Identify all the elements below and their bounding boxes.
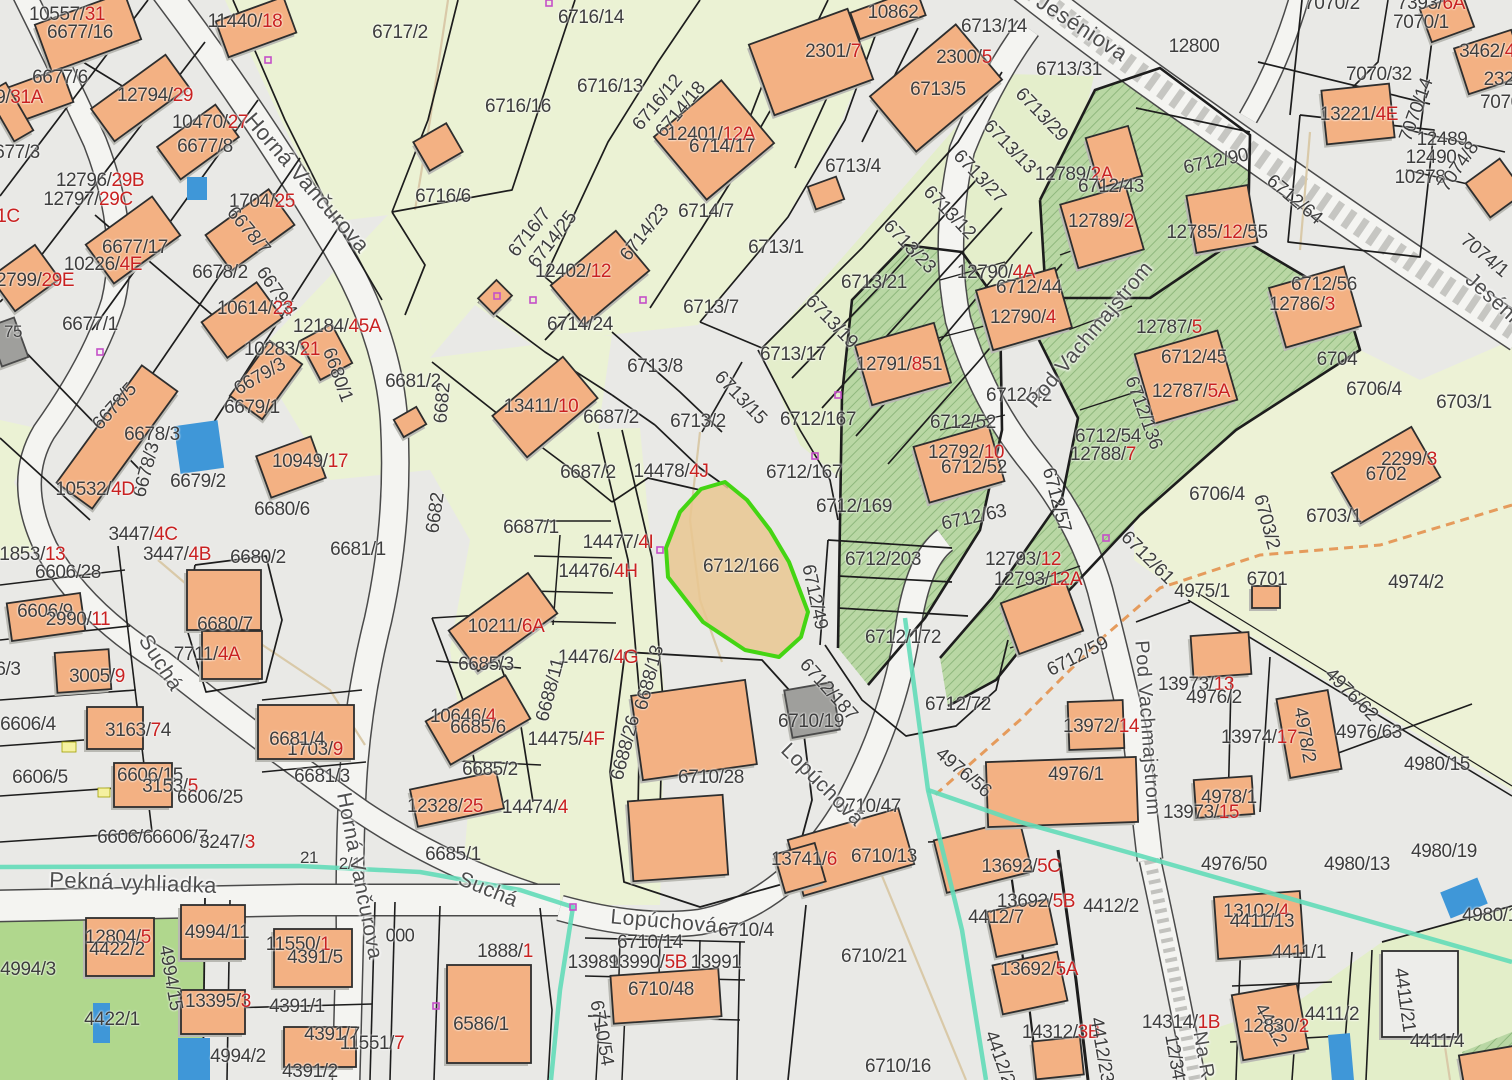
- parcel-label: 13411/10: [504, 396, 579, 418]
- parcel-label: 6712/49: [796, 562, 831, 631]
- parcel-label: 10862: [868, 2, 919, 24]
- parcel-label: 12789/2: [1068, 211, 1134, 233]
- parcel-label: 12790/4: [990, 307, 1056, 329]
- parcel-label: 6713/1: [748, 237, 804, 259]
- parcel-label: 6706/4: [1189, 484, 1245, 506]
- parcel-label: 6687/2: [583, 407, 639, 429]
- parcel-label: 4391/2: [282, 1061, 338, 1080]
- parcel-label: 6710/48: [628, 979, 694, 1001]
- parcel-label: 12402/12: [535, 261, 611, 283]
- parcel-label: 6606/25: [177, 787, 243, 809]
- parcel-label: 21: [300, 848, 318, 868]
- parcel-label: 3462/4: [1459, 41, 1512, 63]
- parcel-label: 12787/5A: [1152, 381, 1230, 403]
- parcel-label: 4976/56: [931, 743, 996, 802]
- parcel-label: 13741/6: [771, 849, 837, 871]
- parcel-label: 12799/29E: [0, 270, 74, 292]
- parcel-label: 14474/4: [502, 797, 568, 819]
- parcel-label: 6586/1: [453, 1014, 509, 1036]
- parcel-label: 6606/5: [12, 767, 68, 789]
- parcel-label: 4412/7: [968, 907, 1024, 929]
- parcel-label: 13973/15: [1163, 802, 1239, 824]
- parcel-label: 6710/21: [841, 946, 907, 968]
- parcel-label: 6712/166: [703, 556, 779, 578]
- parcel-label: 6702: [1366, 464, 1407, 486]
- parcel-label: 6716/13: [577, 76, 643, 98]
- parcel-label: 6606/4: [0, 714, 56, 736]
- parcel-label: 6713/5: [910, 79, 966, 101]
- parcel-label: 4422/2: [89, 939, 145, 961]
- parcel-label: 6712/45: [1161, 347, 1227, 369]
- parcel-label: 7393/6A: [1397, 0, 1465, 15]
- parcel-label: 6712/59: [1044, 632, 1113, 682]
- parcel-label: 14476/4G: [558, 647, 638, 669]
- parcel-label: 6710/16: [865, 1056, 931, 1078]
- parcel-label: 4411/2: [1305, 1004, 1359, 1026]
- parcel-label: 12794/29: [117, 85, 193, 107]
- parcel-label: 4978/2: [1288, 706, 1319, 765]
- parcel-label: 3163/74: [105, 720, 171, 742]
- parcel-label: 75: [4, 322, 22, 342]
- parcel-label: 12830/2: [1243, 1016, 1309, 1038]
- parcel-label: 6687/2: [560, 462, 616, 484]
- parcel-label: 6712/90: [1181, 144, 1250, 179]
- parcel-label: 4980/19: [1411, 841, 1477, 863]
- parcel-label: 10226/4E: [64, 254, 142, 276]
- parcel-label: 2324: [1484, 69, 1512, 91]
- parcel-label: 4994/2: [210, 1046, 266, 1068]
- street-label: Pekná vyhliadka: [49, 867, 218, 899]
- parcel-label: 7070/3: [1480, 92, 1512, 114]
- parcel-label: 2300/5: [936, 47, 992, 69]
- parcel-label: 6712/63: [939, 500, 1008, 535]
- parcel-label: 6710/4: [718, 920, 774, 942]
- map-viewport[interactable]: 10557/316677/1611440/186677/612794/2939/…: [0, 0, 1512, 1080]
- parcel-label: 4976/62: [1320, 664, 1382, 726]
- parcel-label: 13692/5C: [981, 856, 1060, 878]
- parcel-label: 12328/25: [407, 796, 483, 818]
- parcel-label: 4976/50: [1201, 854, 1267, 876]
- parcel-label: 000: [386, 926, 415, 947]
- parcel-label: 6712/167: [766, 462, 842, 484]
- parcel-label: 6712/61: [1116, 527, 1178, 589]
- parcel-label: 4994/11: [185, 922, 249, 944]
- parcel-label: 2990/11: [46, 609, 110, 631]
- parcel-label: 6681/1: [330, 539, 386, 561]
- parcel-label: 6713/2: [670, 411, 726, 433]
- parcel-label: 3447/4B: [143, 544, 211, 566]
- parcel-label: 6710/13: [851, 846, 917, 868]
- parcel-label: 6713/12: [918, 182, 980, 245]
- parcel-label: 3005/9: [69, 666, 125, 688]
- parcel-label: 6/3: [0, 659, 21, 681]
- parcel-label: 6679/1: [224, 397, 280, 419]
- parcel-label: 4980/1: [1462, 905, 1512, 927]
- parcel-label: 12786/3: [1269, 294, 1335, 316]
- parcel-label: 6713/14: [961, 16, 1027, 38]
- parcel-label: 6713/17: [760, 344, 826, 366]
- parcel-label: 4980/13: [1324, 854, 1390, 876]
- parcel-label: 6712/57: [1037, 465, 1075, 534]
- parcel-label: 6682: [422, 491, 449, 534]
- parcel-label: 12787/5: [1136, 317, 1202, 339]
- parcel-label: 6677/16: [47, 22, 113, 44]
- labels-layer: 10557/316677/1611440/186677/612794/2939/…: [0, 0, 1512, 1080]
- parcel-label: 6680/6: [254, 499, 310, 521]
- parcel-label: 3447/4C: [108, 524, 177, 546]
- parcel-label: 12184/45A: [293, 316, 381, 338]
- parcel-label: 13990/5B: [609, 952, 687, 974]
- parcel-label: 6687/1: [503, 517, 559, 539]
- parcel-label: 13972/14: [1063, 716, 1139, 738]
- parcel-label: 6713/23: [878, 216, 940, 279]
- parcel-label: 4412/23: [1084, 1016, 1117, 1080]
- parcel-label: 6688/11: [532, 656, 570, 724]
- parcel-label: 11551/7: [340, 1033, 404, 1055]
- parcel-label: 6682: [430, 382, 455, 424]
- parcel-label: 6710/28: [678, 767, 744, 789]
- parcel-label: 6712/64: [1262, 170, 1327, 229]
- parcel-label: 6680/7: [197, 614, 253, 636]
- parcel-label: 14476/4H: [558, 561, 637, 583]
- parcel-label: 11440/18: [208, 11, 283, 33]
- parcel-label: 12797/29C: [43, 189, 132, 211]
- parcel-label: 6712/52: [930, 412, 996, 434]
- parcel-label: 4994/15: [153, 944, 186, 1013]
- parcel-label: 14475/4F: [527, 729, 604, 751]
- parcel-label: 7070/1: [1393, 12, 1449, 34]
- parcel-label: 6685/3: [458, 654, 514, 676]
- parcel-label: 6712/56: [1291, 274, 1357, 296]
- parcel-label: 6685/2: [462, 759, 518, 781]
- street-label: Jeséniova: [1031, 0, 1132, 67]
- parcel-label: 10283/21: [244, 339, 320, 361]
- parcel-label: 1888/1: [477, 941, 533, 963]
- parcel-label: 6681/3: [294, 766, 350, 788]
- parcel-label: 1C: [0, 206, 20, 228]
- parcel-label: 6713/4: [825, 156, 881, 178]
- parcel-label: 10211/6A: [468, 616, 545, 638]
- parcel-label: 6703/2: [1248, 492, 1284, 552]
- parcel-label: 10949/17: [272, 451, 348, 473]
- parcel-label: 4994/3: [0, 959, 56, 981]
- parcel-label: 39/31A: [0, 87, 43, 109]
- parcel-label: 4975/1: [1174, 581, 1230, 603]
- parcel-label: 4412/2: [979, 1028, 1019, 1080]
- parcel-label: 14478/4J: [634, 461, 709, 483]
- parcel-label: 6703/1: [1436, 392, 1492, 414]
- parcel-label: 14477/4I: [583, 532, 654, 554]
- parcel-label: 6680/1: [317, 345, 357, 405]
- parcel-label: 3247/3: [199, 832, 255, 854]
- parcel-label: 6688/26: [607, 713, 645, 782]
- parcel-label: 12793/12: [985, 549, 1061, 571]
- street-label: Na R: [1188, 1030, 1219, 1080]
- parcel-label: 4411/21: [1389, 967, 1420, 1034]
- parcel-label: 6714/24: [547, 314, 613, 336]
- parcel-label: 6679/2: [170, 471, 226, 493]
- parcel-label: 6677/3: [0, 142, 40, 164]
- parcel-label: 13692/5A: [1000, 959, 1078, 981]
- street-label: Jeséniova: [1460, 268, 1512, 352]
- parcel-label: 6713/21: [841, 272, 907, 294]
- parcel-label: 7070/32: [1346, 64, 1412, 86]
- parcel-label: 6685/6: [450, 717, 506, 739]
- parcel-label: 6710/19: [778, 711, 844, 733]
- parcel-label: 6710/54: [584, 999, 617, 1068]
- parcel-label: 6710/14: [617, 932, 683, 954]
- parcel-label: 6713/8: [627, 356, 683, 378]
- parcel-label: 6717/2: [372, 22, 428, 44]
- street-label: Lopúchová: [776, 739, 869, 832]
- parcel-label: 4411/13: [1230, 911, 1294, 933]
- parcel-label: 6703/1: [1306, 506, 1362, 528]
- parcel-label: 4412/2: [1083, 896, 1139, 918]
- street-label: Horná Vančurova: [331, 791, 387, 962]
- parcel-label: 6712/169: [816, 496, 892, 518]
- parcel-label: 6685/1: [425, 844, 481, 866]
- parcel-label: 6704: [1317, 349, 1358, 371]
- parcel-label: 6712/72: [925, 694, 991, 716]
- parcel-label: 6606/6: [97, 827, 153, 849]
- street-label: Pod Vachmajstrom: [1129, 640, 1164, 817]
- parcel-label: 6706/4: [1346, 379, 1402, 401]
- parcel-label: 4411/4: [1410, 1031, 1464, 1053]
- parcel-label: 6716/16: [485, 96, 551, 118]
- parcel-label: 6714/7: [678, 201, 734, 223]
- parcel-label: 4976/63: [1336, 722, 1402, 744]
- parcel-label: 6677/8: [177, 136, 233, 158]
- parcel-label: 13991: [691, 952, 742, 974]
- parcel-label: 12785/12/55: [1166, 222, 1267, 244]
- parcel-label: 7711/4A: [174, 644, 241, 666]
- parcel-label: 4422/1: [84, 1009, 140, 1031]
- parcel-label: 6677/1: [62, 314, 118, 336]
- parcel-label: 6606/28: [35, 562, 101, 584]
- parcel-label: 6712/203: [845, 549, 921, 571]
- street-label: Suchá: [455, 867, 522, 912]
- parcel-label: 4391/5: [287, 947, 343, 969]
- parcel-label: 4976/2: [1186, 687, 1242, 709]
- parcel-label: 6681/4: [269, 729, 325, 751]
- parcel-label: 4391/1: [269, 996, 325, 1018]
- parcel-label: 6712/43: [1078, 176, 1144, 198]
- parcel-label: 7070/2: [1304, 0, 1360, 15]
- parcel-label: 6713/31: [1036, 59, 1102, 81]
- parcel-label: 10614/23: [217, 298, 293, 320]
- parcel-label: 4976/1: [1048, 764, 1104, 786]
- parcel-label: 4974/2: [1388, 572, 1444, 594]
- parcel-label: 6712/172: [865, 627, 941, 649]
- parcel-label: 6678/2: [192, 262, 248, 284]
- parcel-label: 13221/4E: [1320, 104, 1398, 126]
- parcel-label: 12791/851: [856, 354, 942, 376]
- parcel-label: 6713/7: [683, 297, 739, 319]
- parcel-label: 4980/15: [1404, 754, 1470, 776]
- parcel-label: 13395/3: [185, 991, 251, 1013]
- parcel-label: 12800: [1169, 36, 1220, 58]
- parcel-label: 2301/7: [805, 41, 861, 63]
- parcel-label: 6712/44: [996, 277, 1062, 299]
- parcel-label: 12/34: [1159, 1033, 1189, 1080]
- parcel-label: 6716/14: [558, 7, 624, 29]
- parcel-label: 12793/12A: [994, 569, 1082, 591]
- parcel-label: 12788/7: [1070, 444, 1136, 466]
- parcel-label: 6680/2: [230, 547, 286, 569]
- parcel-label: 6677/6: [32, 67, 88, 89]
- parcel-label: 6701: [1247, 569, 1288, 591]
- parcel-label: 10532/4D: [55, 479, 134, 501]
- parcel-label: 6716/6: [415, 186, 471, 208]
- parcel-label: 4411/1: [1272, 942, 1326, 964]
- parcel-label: 6712/167: [780, 409, 856, 431]
- parcel-label: 6713/29: [1010, 84, 1072, 147]
- parcel-label: 6712/52: [941, 457, 1007, 479]
- parcel-label: 13974/17: [1221, 727, 1297, 749]
- parcel-label: 6714/23: [616, 200, 674, 265]
- parcel-label: 10470/27: [172, 112, 248, 134]
- parcel-label: 6714/17: [689, 136, 755, 158]
